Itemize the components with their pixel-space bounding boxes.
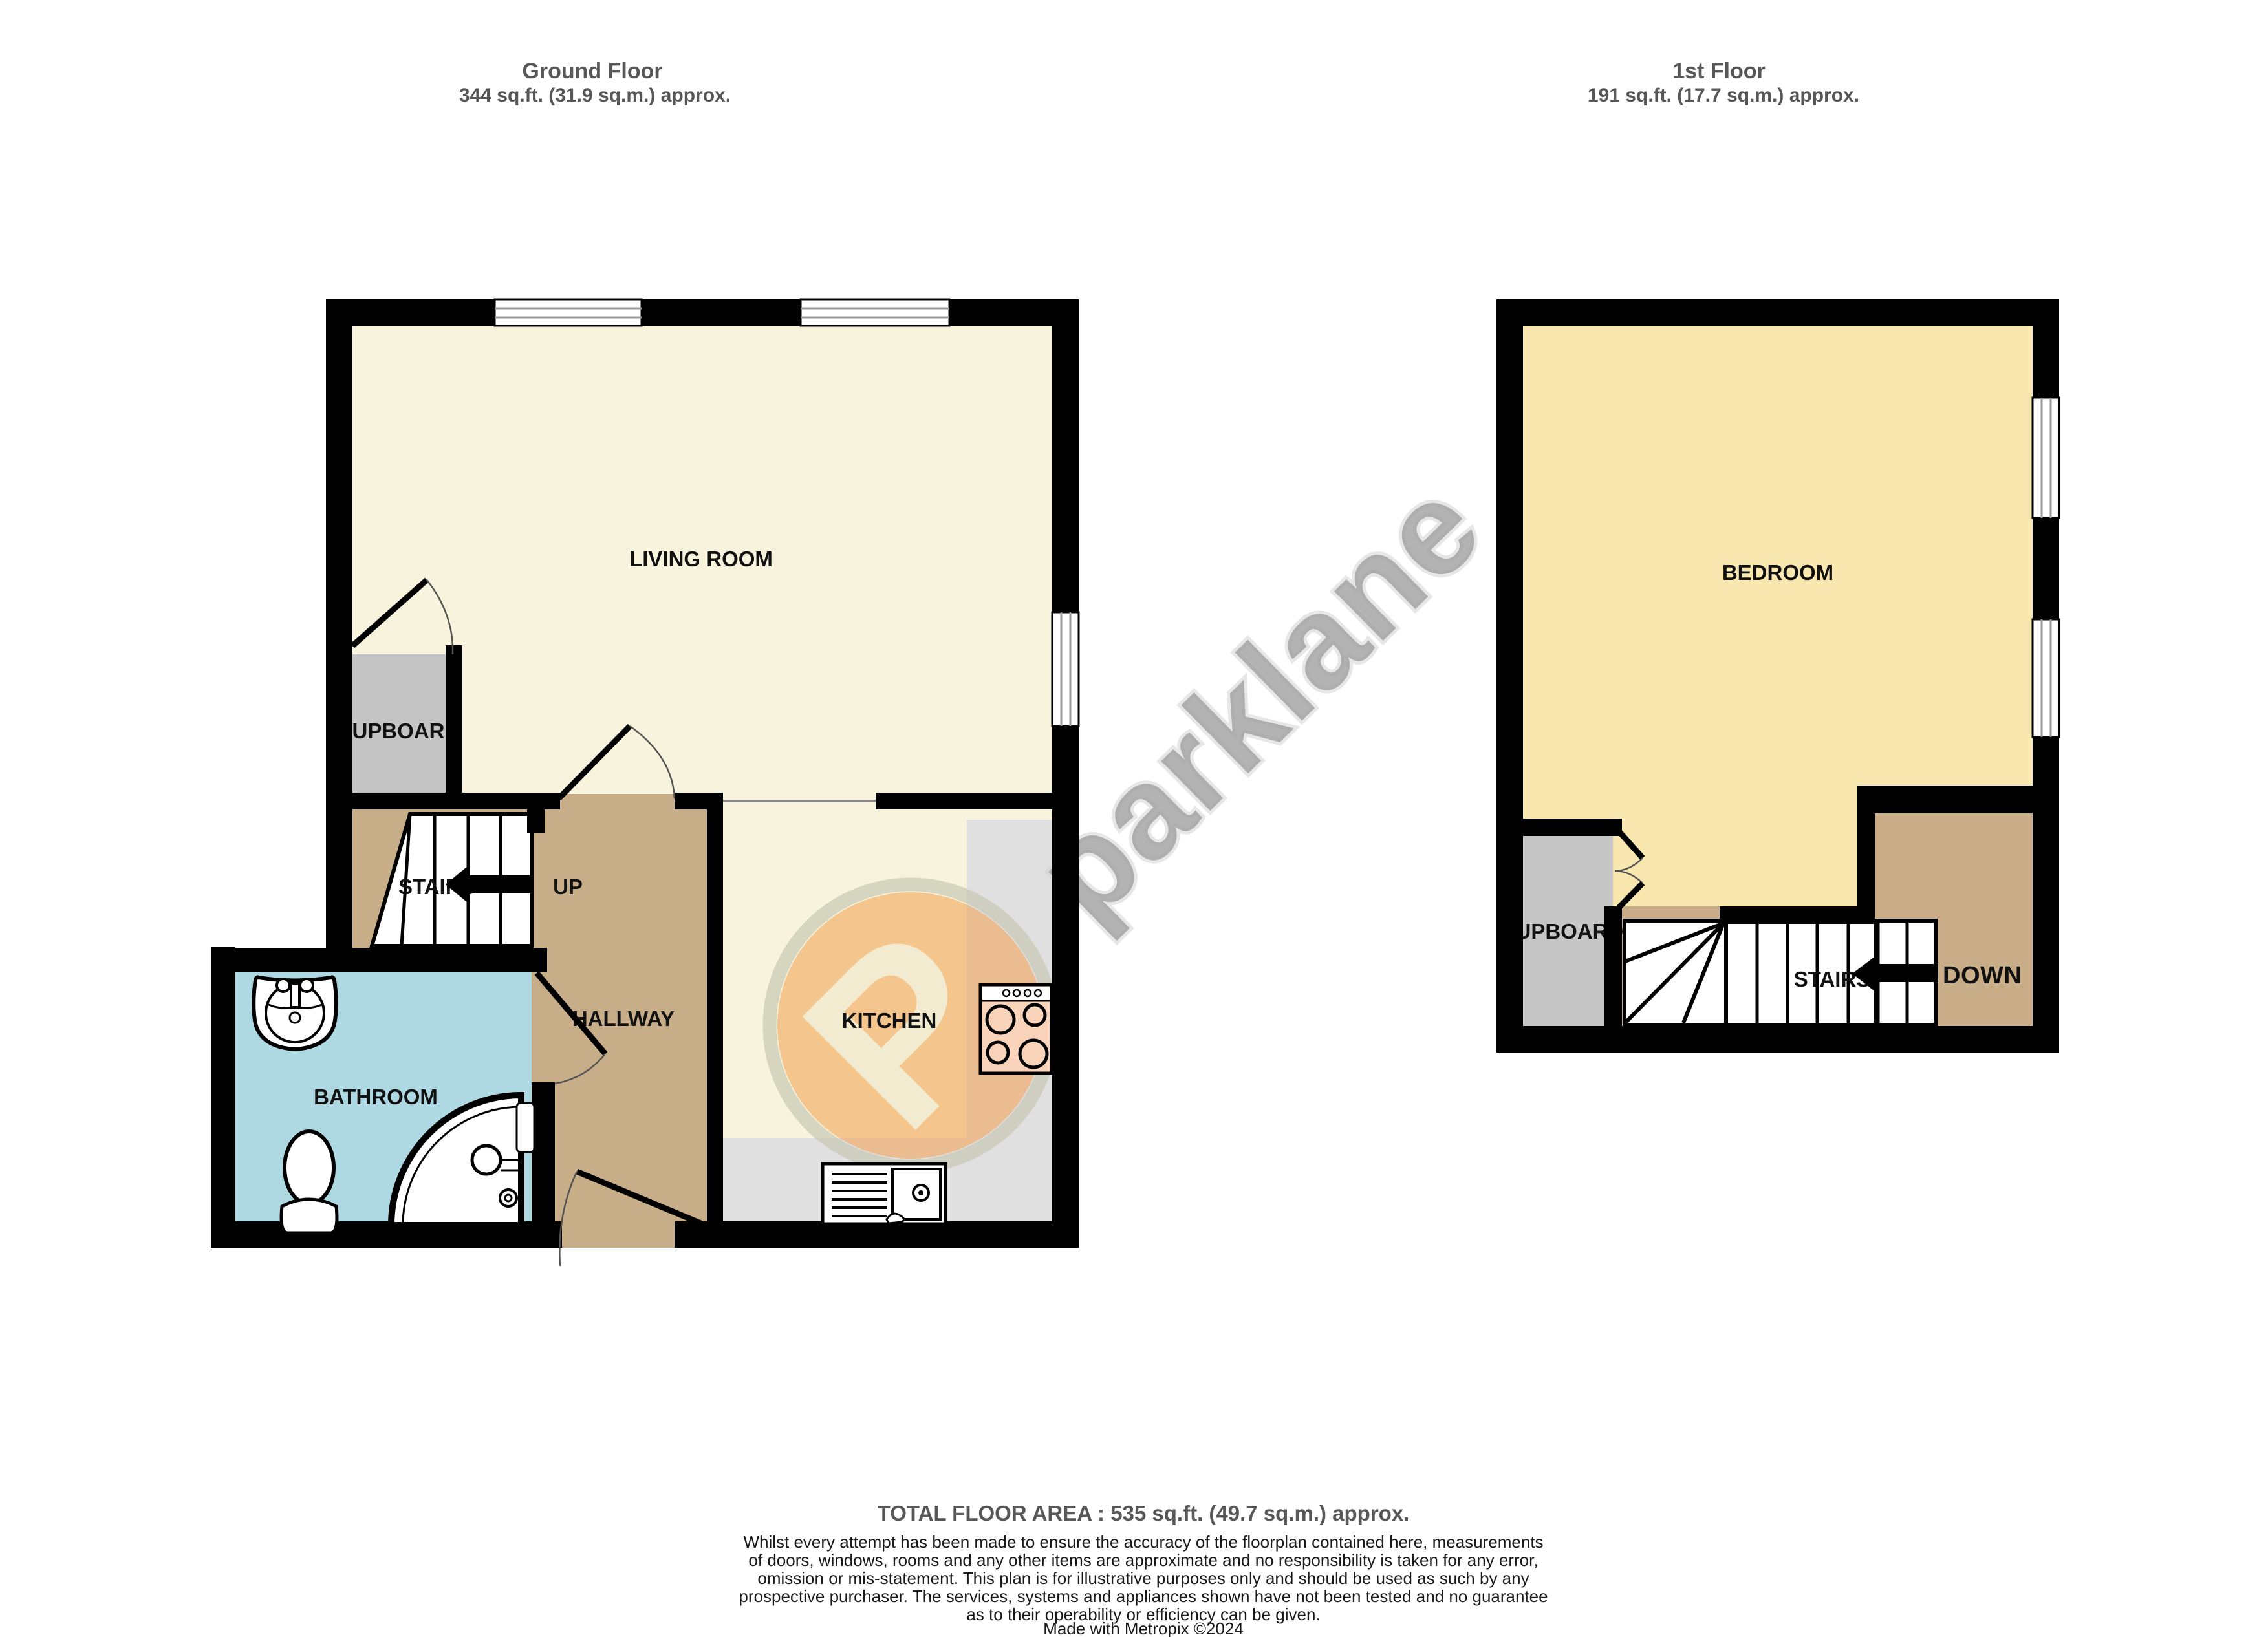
svg-text:BATHROOM: BATHROOM	[314, 1085, 438, 1109]
svg-text:UP: UP	[553, 875, 583, 899]
svg-text:LIVING ROOM: LIVING ROOM	[629, 547, 773, 571]
svg-text:BEDROOM: BEDROOM	[1722, 561, 1833, 584]
svg-text:CUPBOARD: CUPBOARD	[337, 719, 460, 743]
svg-text:HALLWAY: HALLWAY	[572, 1007, 675, 1031]
svg-text:DOWN: DOWN	[1943, 962, 2022, 989]
svg-text:Whilst every attempt has been: Whilst every attempt has been made to en…	[743, 1532, 1543, 1552]
svg-text:parklane: parklane	[1008, 452, 1509, 948]
svg-text:1st Floor: 1st Floor	[1672, 59, 1766, 83]
svg-text:omission or mis-statement. Thi: omission or mis-statement. This plan is …	[757, 1568, 1529, 1588]
svg-text:of doors, windows, rooms and a: of doors, windows, rooms and any other i…	[748, 1550, 1538, 1570]
svg-text:TOTAL FLOOR AREA : 535 sq.ft.: TOTAL FLOOR AREA : 535 sq.ft. (49.7 sq.m…	[878, 1501, 1410, 1525]
svg-text:191 sq.ft. (17.7 sq.m.) approx: 191 sq.ft. (17.7 sq.m.) approx.	[1588, 85, 1859, 106]
svg-text:Made with Metropix ©2024: Made with Metropix ©2024	[1043, 1619, 1244, 1637]
svg-text:344 sq.ft. (31.9 sq.m.) approx: 344 sq.ft. (31.9 sq.m.) approx.	[459, 85, 731, 106]
svg-text:Ground Floor: Ground Floor	[522, 59, 662, 83]
svg-text:prospective purchaser. The ser: prospective purchaser. The services, sys…	[739, 1587, 1548, 1606]
svg-text:KITCHEN: KITCHEN	[842, 1009, 937, 1032]
